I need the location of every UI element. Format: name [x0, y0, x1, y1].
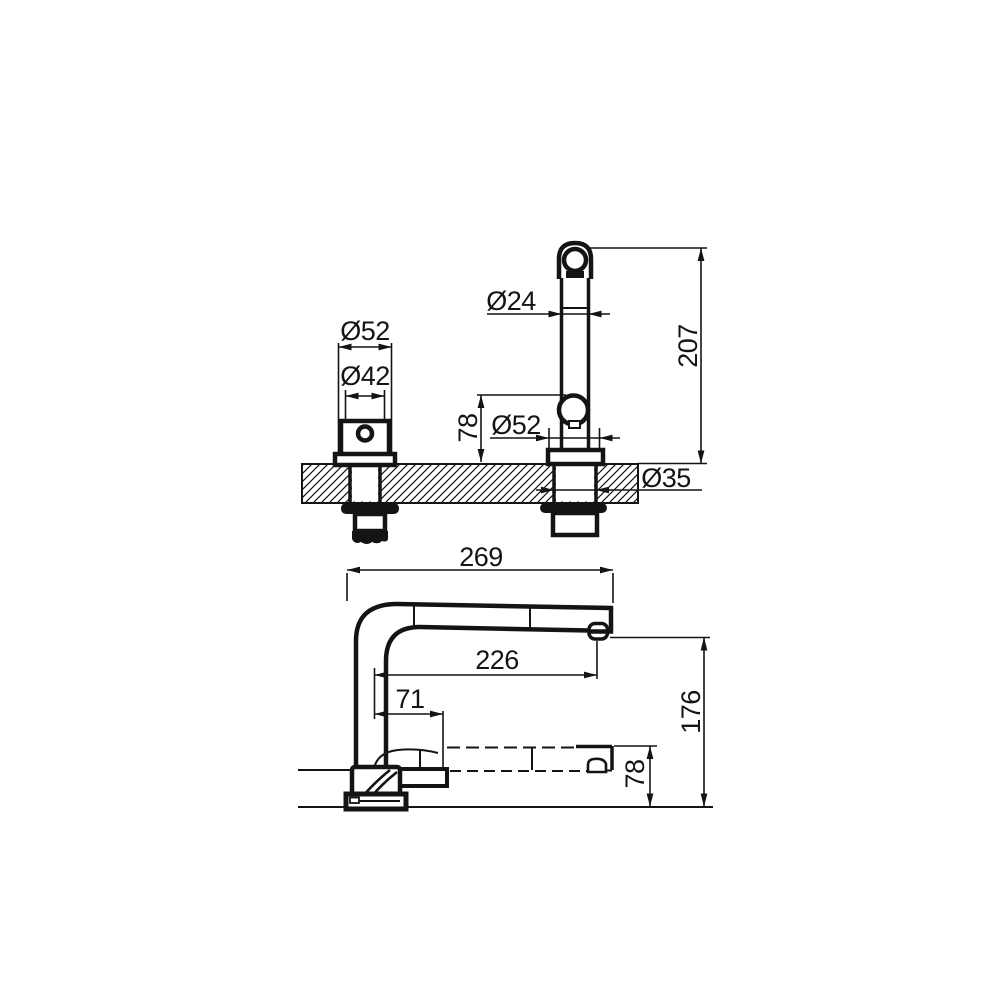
dim-label: 78 [453, 413, 483, 442]
arrowhead [430, 711, 443, 718]
dim-label: Ø52 [340, 316, 390, 346]
extension-line [347, 573, 613, 603]
dim-label: Ø24 [486, 286, 536, 316]
ball-joint-notch [569, 421, 580, 428]
dim-label: 226 [475, 645, 519, 675]
arrowhead [600, 435, 613, 442]
spout-nut [553, 513, 597, 535]
spout-side-raised [356, 604, 611, 770]
base-flange-slot [350, 798, 359, 804]
faucet-technical-drawing: Ø52 Ø42 Ø24 78 [0, 0, 1000, 1000]
spray-holder-stub [396, 769, 447, 786]
arrowhead [701, 638, 708, 651]
arrowhead [584, 672, 597, 679]
dim-label: 269 [459, 542, 503, 572]
handle-screw [358, 427, 372, 441]
arrowhead [549, 311, 562, 318]
arrowhead [478, 395, 485, 408]
technical-drawing-page: Ø52 Ø42 Ø24 78 [0, 0, 1000, 1000]
arrowhead [372, 393, 385, 400]
arrowhead [346, 393, 359, 400]
arrowhead [647, 746, 654, 759]
dim-overall-length: 269 [347, 542, 613, 603]
arrowhead [701, 794, 708, 807]
dim-label: Ø52 [491, 410, 541, 440]
dim-label: Ø42 [340, 361, 390, 391]
arrowhead [698, 451, 705, 464]
dim-spout-height: 207 [589, 248, 707, 464]
side-profile-view: 269 226 71 176 [298, 542, 713, 809]
extension-line [346, 390, 385, 419]
dim-label: Ø35 [641, 463, 691, 493]
dim-label: 78 [620, 759, 650, 788]
arrowhead [478, 449, 485, 462]
dim-label: 207 [673, 324, 703, 368]
arrowhead [600, 567, 613, 574]
dim-label: 176 [676, 690, 706, 734]
dim-lowered-spout-height: 78 [614, 746, 657, 807]
spout-base-flange [548, 450, 603, 464]
shank-cutout-right [556, 466, 594, 502]
spout-cap-shadow [566, 271, 584, 278]
dim-spout-tube-dia: Ø24 [486, 286, 610, 317]
dim-spout-base-dia: Ø52 [490, 410, 620, 449]
handle-threaded-tip [352, 531, 388, 544]
spout-side-lowered [374, 746, 612, 786]
shank-cutout-left [352, 466, 378, 502]
arrowhead [375, 672, 388, 679]
spout-outlet-circle [564, 249, 586, 271]
dim-handle-body-dia: Ø42 [340, 361, 390, 419]
front-elevation-view: Ø52 Ø42 Ø24 78 [302, 243, 707, 544]
arrowhead [375, 711, 388, 718]
arrowhead [347, 567, 360, 574]
handle-nut [355, 514, 385, 531]
arrowhead [698, 248, 705, 261]
countertop-section [302, 464, 638, 503]
arrowhead [647, 794, 654, 807]
mounting-body [346, 767, 406, 809]
arrowhead [589, 311, 602, 318]
handle-flange [335, 454, 395, 465]
lowered-aerator-nub [588, 759, 606, 772]
dim-label: 71 [395, 684, 424, 714]
